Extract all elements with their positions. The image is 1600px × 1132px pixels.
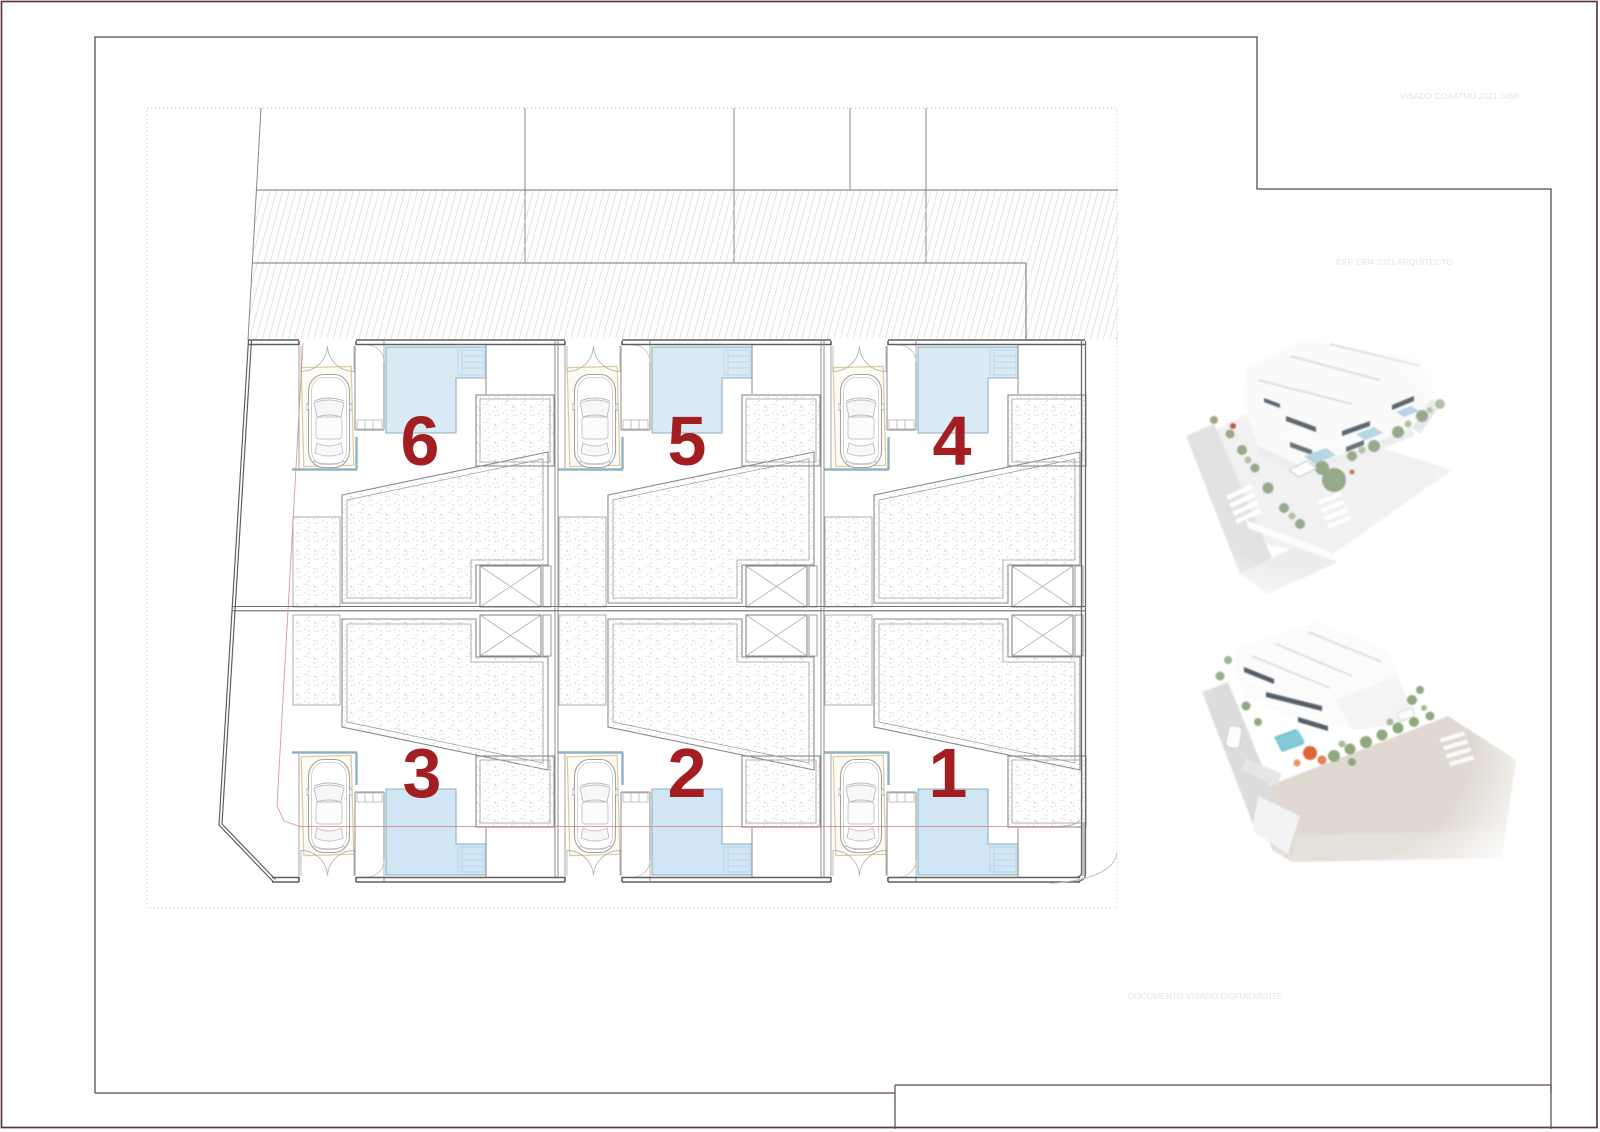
- svg-text:1: 1: [929, 734, 968, 812]
- svg-text:VISADO COAATMU 2021 0456: VISADO COAATMU 2021 0456: [1400, 91, 1519, 101]
- svg-text:5: 5: [668, 402, 707, 480]
- svg-text:EXP 1904 2021 ARQUITECTO: EXP 1904 2021 ARQUITECTO: [1336, 257, 1453, 267]
- svg-text:2: 2: [668, 734, 707, 812]
- svg-text:3: 3: [403, 734, 442, 812]
- svg-text:6: 6: [401, 402, 440, 480]
- svg-text:DOCUMENTO VISADO DIGITALMENTE: DOCUMENTO VISADO DIGITALMENTE: [1128, 991, 1283, 1001]
- svg-text:4: 4: [933, 402, 972, 480]
